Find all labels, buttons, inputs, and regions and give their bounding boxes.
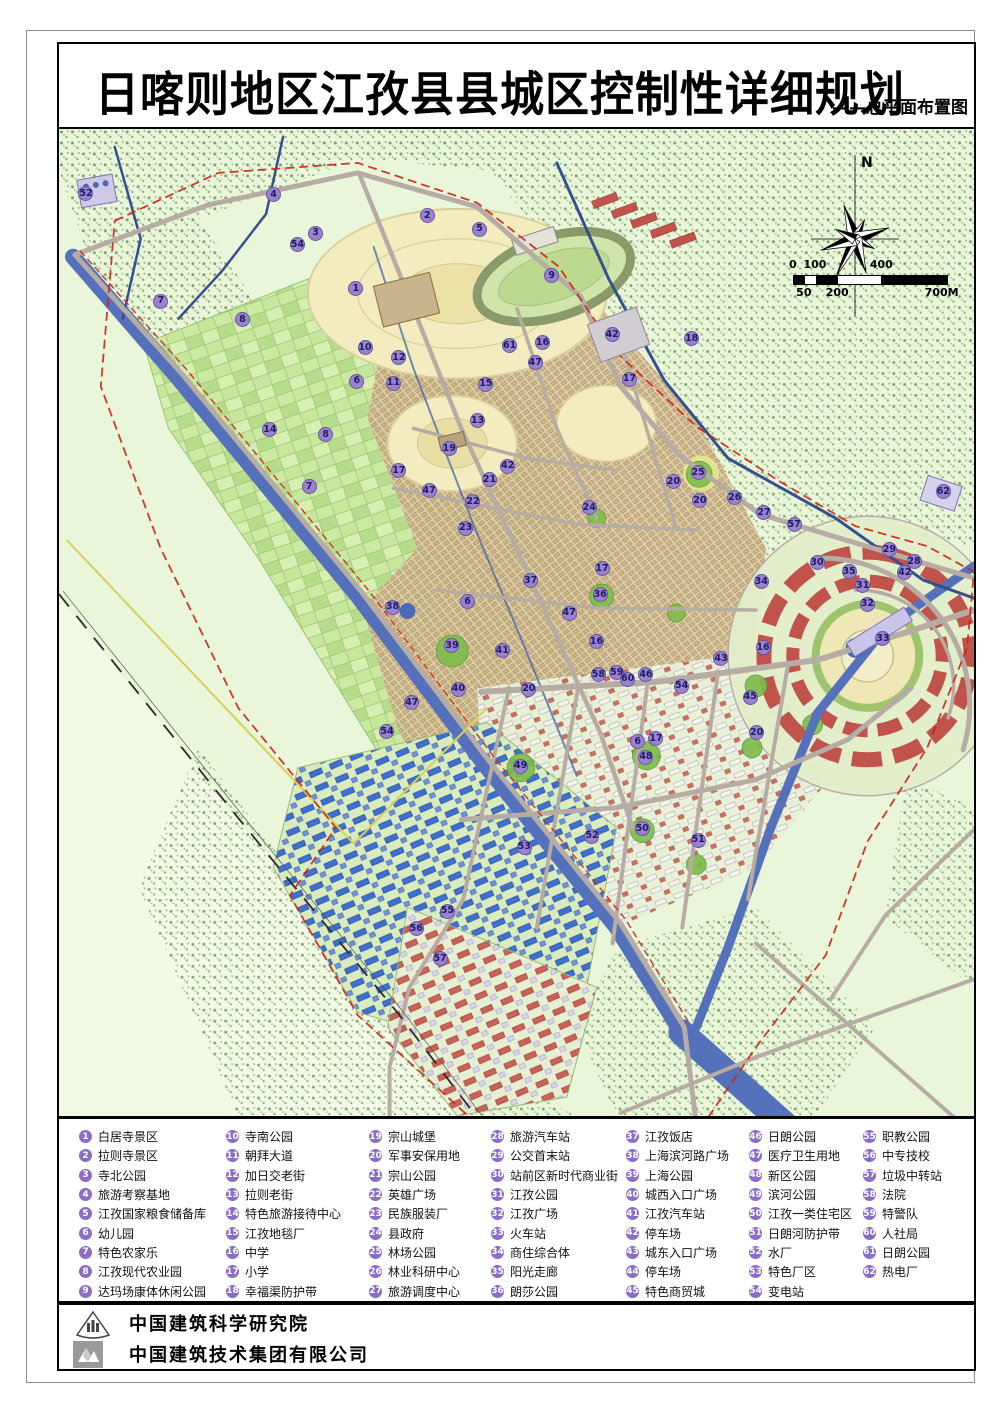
- legend-item-label: 朝拜大道: [245, 1147, 293, 1164]
- legend-item-number: 24: [369, 1227, 382, 1240]
- legend-item-23: 23民族服装厂: [369, 1204, 460, 1223]
- legend-item-label: 火车站: [510, 1225, 546, 1242]
- legend-item-number: 11: [226, 1149, 239, 1162]
- map-marker-8: 8: [318, 427, 333, 442]
- legend-item-label: 热电厂: [882, 1263, 918, 1280]
- legend-item-12: 12加日交老街: [226, 1166, 341, 1185]
- map-marker-17: 17: [622, 372, 637, 387]
- map-marker-43: 43: [713, 651, 728, 666]
- page-title: 日喀则地区江孜县县城区控制性详细规划: [95, 56, 905, 125]
- legend-item-label: 城西入口广场: [645, 1186, 717, 1203]
- legend-item-5: 5江孜国家粮食储备库: [79, 1204, 206, 1223]
- map-marker-40: 40: [451, 682, 466, 697]
- legend-item-number: 35: [491, 1265, 504, 1278]
- legend-item-10: 10寺南公园: [226, 1127, 341, 1146]
- legend-item-35: 35阳光走廊: [491, 1262, 618, 1281]
- map-marker-47: 47: [422, 483, 437, 498]
- map-marker-57: 57: [433, 951, 448, 966]
- map-marker-17: 17: [648, 731, 663, 746]
- map-marker-16: 16: [589, 634, 604, 649]
- plan-sheet-content: 日喀则地区江孜县县城区控制性详细规划 ——总平面布置图: [57, 42, 976, 1371]
- map-marker-34: 34: [754, 574, 769, 589]
- legend-item-label: 特警队: [882, 1205, 918, 1222]
- legend-item-label: 加日交老街: [245, 1167, 305, 1184]
- page-subtitle: ——总平面布置图: [832, 93, 968, 118]
- legend-column-4: 28旅游汽车站29公交首末站30站前区新时代商业街31江孜公园32江孜广场33火…: [491, 1127, 618, 1301]
- legend-item-number: 33: [491, 1227, 504, 1240]
- map-marker-17: 17: [391, 463, 406, 478]
- legend-item-label: 职教公园: [882, 1128, 930, 1145]
- map-marker-23: 23: [458, 521, 473, 536]
- map-marker-54: 54: [674, 679, 689, 694]
- legend-item-number: 1: [79, 1130, 92, 1143]
- legend-item-number: 57: [863, 1169, 876, 1182]
- map-marker-8: 8: [235, 312, 250, 327]
- legend-column-2: 10寺南公园11朝拜大道12加日交老街13拉则老街14特色旅游接待中心15江孜地…: [226, 1127, 341, 1301]
- legend-item-label: 江孜广场: [510, 1205, 558, 1222]
- footer: 中国建筑科学研究院 中国建筑技术集团有限公司: [59, 1301, 974, 1369]
- map-marker-19: 19: [442, 441, 457, 456]
- map-marker-31: 31: [855, 578, 870, 593]
- legend-item-label: 宗山公园: [388, 1167, 436, 1184]
- map-marker-42: 42: [897, 565, 912, 580]
- legend-item-number: 39: [626, 1169, 639, 1182]
- map-marker-12: 12: [391, 350, 406, 365]
- legend-item-number: 32: [491, 1207, 504, 1220]
- map-marker-53: 53: [517, 840, 532, 855]
- map-marker-21: 21: [482, 472, 497, 487]
- legend-item-number: 62: [863, 1265, 876, 1278]
- map-marker-42: 42: [605, 327, 620, 342]
- scale-bar-label: 0: [789, 258, 797, 271]
- legend-item-32: 32江孜广场: [491, 1204, 618, 1223]
- map-marker-41: 41: [495, 643, 510, 658]
- legend-item-label: 旅游考察基地: [98, 1186, 170, 1203]
- map-marker-54: 54: [290, 237, 305, 252]
- legend-item-label: 医疗卫生用地: [768, 1147, 840, 1164]
- map-marker-56: 56: [409, 921, 424, 936]
- legend-item-label: 林业科研中心: [388, 1263, 460, 1280]
- legend-item-label: 旅游汽车站: [510, 1128, 570, 1145]
- legend-item-label: 特色旅游接待中心: [245, 1205, 341, 1222]
- legend-item-number: 60: [863, 1227, 876, 1240]
- legend-item-number: 6: [79, 1227, 92, 1240]
- legend-item-number: 19: [369, 1130, 382, 1143]
- legend-item-61: 61日朗公园: [863, 1243, 942, 1262]
- legend-item-number: 10: [226, 1130, 239, 1143]
- map-marker-27: 27: [756, 505, 771, 520]
- scale-bar-label: 50: [796, 286, 811, 299]
- legend-item-number: 23: [369, 1207, 382, 1220]
- legend-item-number: 8: [79, 1265, 92, 1278]
- legend-item-52: 52水厂: [749, 1243, 852, 1262]
- legend-item-number: 18: [226, 1285, 239, 1298]
- org-name-1: 中国建筑科学研究院: [129, 1310, 309, 1336]
- map-marker-30: 30: [810, 555, 825, 570]
- legend-item-number: 21: [369, 1169, 382, 1182]
- legend-item-number: 46: [749, 1130, 762, 1143]
- legend-item-label: 滨河公园: [768, 1186, 816, 1203]
- map-marker-20: 20: [521, 682, 536, 697]
- legend-item-label: 变电站: [768, 1283, 804, 1300]
- legend-item-49: 49滨河公园: [749, 1185, 852, 1204]
- map-marker-17: 17: [595, 561, 610, 576]
- legend-item-number: 56: [863, 1149, 876, 1162]
- legend-item-24: 24县政府: [369, 1223, 460, 1242]
- scale-bar-segment: [816, 276, 838, 284]
- legend-item-number: 7: [79, 1246, 92, 1259]
- scale-bar-label: 200: [826, 286, 849, 299]
- scale-bar-segment: [794, 276, 805, 284]
- scale-bar-label: 700M: [925, 286, 959, 299]
- legend-item-3: 3寺北公园: [79, 1166, 206, 1185]
- legend-item-number: 41: [626, 1207, 639, 1220]
- legend-item-27: 27旅游调度中心: [369, 1281, 460, 1300]
- legend-item-7: 7特色农家乐: [79, 1243, 206, 1262]
- legend-item-label: 停车场: [645, 1263, 681, 1280]
- map-marker-25: 25: [691, 465, 706, 480]
- scale-bar-segments: [793, 275, 948, 285]
- legend-item-20: 20军事安保用地: [369, 1146, 460, 1165]
- legend-item-55: 55职教公园: [863, 1127, 942, 1146]
- map-marker-16: 16: [535, 335, 550, 350]
- map-marker-35: 35: [842, 564, 857, 579]
- legend-column-6: 46日朗公园47医疗卫生用地48新区公园49滨河公园50江孜一类住宅区51日朗河…: [749, 1127, 852, 1301]
- legend-item-number: 17: [226, 1265, 239, 1278]
- legend-item-number: 59: [863, 1207, 876, 1220]
- legend-item-number: 40: [626, 1188, 639, 1201]
- legend-item-8: 8江孜现代农业园: [79, 1262, 206, 1281]
- legend-item-label: 拉则寺景区: [98, 1147, 158, 1164]
- map-marker-5: 5: [472, 222, 487, 237]
- legend-item-label: 县政府: [388, 1225, 424, 1242]
- legend-item-45: 45特色商贸城: [626, 1281, 729, 1300]
- legend-item-16: 16中学: [226, 1243, 341, 1262]
- legend-item-13: 13拉则老街: [226, 1185, 341, 1204]
- legend-column-5: 37江孜饭店38上海滨河路广场39上海公园40城西入口广场41江孜汽车站42停车…: [626, 1127, 729, 1301]
- legend-item-19: 19宗山城堡: [369, 1127, 460, 1146]
- legend-item-label: 日朗公园: [882, 1244, 930, 1261]
- legend-item-label: 新区公园: [768, 1167, 816, 1184]
- legend-item-34: 34商住综合体: [491, 1243, 618, 1262]
- legend-item-label: 垃圾中转站: [882, 1167, 942, 1184]
- map-marker-32: 32: [860, 597, 875, 612]
- map-marker-6: 6: [349, 374, 364, 389]
- legend-item-number: 42: [626, 1227, 639, 1240]
- legend-item-number: 29: [491, 1149, 504, 1162]
- legend-item-57: 57垃圾中转站: [863, 1166, 942, 1185]
- map-marker-42: 42: [500, 459, 515, 474]
- legend-item-label: 江孜公园: [510, 1186, 558, 1203]
- legend-item-label: 旅游调度中心: [388, 1283, 460, 1300]
- legend-item-label: 公交首末站: [510, 1147, 570, 1164]
- legend-item-label: 江孜饭店: [645, 1128, 693, 1145]
- legend-item-58: 58法院: [863, 1185, 942, 1204]
- legend-item-50: 50江孜一类住宅区: [749, 1204, 852, 1223]
- legend-item-label: 特色农家乐: [98, 1244, 158, 1261]
- map-marker-58: 58: [591, 667, 606, 682]
- legend-item-number: 49: [749, 1188, 762, 1201]
- map-marker-57: 57: [787, 517, 802, 532]
- legend-item-label: 上海公园: [645, 1167, 693, 1184]
- map-marker-52: 52: [584, 829, 599, 844]
- legend-item-label: 日朗河防护带: [768, 1225, 840, 1242]
- legend-item-29: 29公交首末站: [491, 1146, 618, 1165]
- legend-item-label: 江孜汽车站: [645, 1205, 705, 1222]
- legend-item-label: 英雄广场: [388, 1186, 436, 1203]
- legend-item-51: 51日朗河防护带: [749, 1223, 852, 1242]
- cabr-logo-icon: [73, 1310, 113, 1340]
- legend-item-36: 36朗莎公园: [491, 1281, 618, 1300]
- legend-column-1: 1白居寺景区2拉则寺景区3寺北公园4旅游考察基地5江孜国家粮食储备库6幼儿园7特…: [79, 1127, 206, 1301]
- map-marker-16: 16: [756, 640, 771, 655]
- cctc-logo-icon: [73, 1341, 103, 1368]
- legend-item-number: 2: [79, 1149, 92, 1162]
- legend-item-number: 13: [226, 1188, 239, 1201]
- legend-item-label: 特色商贸城: [645, 1283, 705, 1300]
- legend-item-label: 民族服装厂: [388, 1205, 448, 1222]
- legend-item-number: 47: [749, 1149, 762, 1162]
- legend-item-number: 55: [863, 1130, 876, 1143]
- legend-item-number: 43: [626, 1246, 639, 1259]
- legend: 1白居寺景区2拉则寺景区3寺北公园4旅游考察基地5江孜国家粮食储备库6幼儿园7特…: [59, 1119, 974, 1301]
- map-marker-39: 39: [444, 638, 459, 653]
- legend-item-number: 34: [491, 1246, 504, 1259]
- legend-item-label: 寺北公园: [98, 1167, 146, 1184]
- legend-item-label: 城东入口广场: [645, 1244, 717, 1261]
- legend-item-label: 寺南公园: [245, 1128, 293, 1145]
- legend-item-number: 50: [749, 1207, 762, 1220]
- map-marker-6: 6: [460, 594, 475, 609]
- legend-item-number: 36: [491, 1285, 504, 1298]
- map-marker-47: 47: [562, 606, 577, 621]
- legend-item-number: 28: [491, 1130, 504, 1143]
- map-marker-22: 22: [465, 494, 480, 509]
- legend-item-41: 41江孜汽车站: [626, 1204, 729, 1223]
- legend-item-47: 47医疗卫生用地: [749, 1146, 852, 1165]
- map-marker-7: 7: [153, 294, 168, 309]
- map-marker-11: 11: [386, 376, 401, 391]
- legend-item-53: 53特色厂区: [749, 1262, 852, 1281]
- legend-item-62: 62热电厂: [863, 1262, 942, 1281]
- legend-item-18: 18幸福渠防护带: [226, 1281, 341, 1300]
- scale-bar-label: 400: [870, 258, 893, 271]
- legend-item-30: 30站前区新时代商业街: [491, 1166, 618, 1185]
- legend-item-number: 4: [79, 1188, 92, 1201]
- legend-item-56: 56中专技校: [863, 1146, 942, 1165]
- legend-item-22: 22英雄广场: [369, 1185, 460, 1204]
- legend-item-label: 法院: [882, 1186, 906, 1203]
- legend-item-number: 45: [626, 1285, 639, 1298]
- legend-item-26: 26林业科研中心: [369, 1262, 460, 1281]
- map-marker-37: 37: [523, 573, 538, 588]
- map-marker-13: 13: [470, 413, 485, 428]
- legend-item-54: 54变电站: [749, 1281, 852, 1300]
- legend-item-label: 小学: [245, 1263, 269, 1280]
- legend-item-number: 9: [79, 1285, 92, 1298]
- map-marker-54: 54: [379, 724, 394, 739]
- map-marker-10: 10: [358, 340, 373, 355]
- legend-item-number: 61: [863, 1246, 876, 1259]
- legend-item-31: 31江孜公园: [491, 1185, 618, 1204]
- legend-item-label: 江孜国家粮食储备库: [98, 1205, 206, 1222]
- map-marker-60: 60: [620, 672, 635, 687]
- legend-item-number: 16: [226, 1246, 239, 1259]
- legend-item-label: 特色厂区: [768, 1263, 816, 1280]
- map-marker-62: 62: [936, 484, 951, 499]
- legend-item-number: 44: [626, 1265, 639, 1278]
- legend-item-label: 日朗公园: [768, 1128, 816, 1145]
- legend-item-label: 幼儿园: [98, 1225, 134, 1242]
- legend-item-25: 25林场公园: [369, 1243, 460, 1262]
- legend-item-33: 33火车站: [491, 1223, 618, 1242]
- map-marker-55: 55: [440, 904, 455, 919]
- legend-item-1: 1白居寺景区: [79, 1127, 206, 1146]
- legend-item-number: 15: [226, 1227, 239, 1240]
- legend-item-label: 达玛场康体休闲公园: [98, 1283, 206, 1300]
- map-marker-26: 26: [727, 490, 742, 505]
- legend-item-label: 水厂: [768, 1244, 792, 1261]
- scale-bar: 0100400 50200700M: [793, 260, 948, 304]
- legend-item-number: 37: [626, 1130, 639, 1143]
- legend-item-label: 拉则老街: [245, 1186, 293, 1203]
- legend-item-15: 15江孜地毯厂: [226, 1223, 341, 1242]
- legend-item-number: 27: [369, 1285, 382, 1298]
- map-marker-20: 20: [749, 725, 764, 740]
- legend-item-number: 52: [749, 1246, 762, 1259]
- map-marker-18: 18: [684, 331, 699, 346]
- map-marker-52: 52: [78, 186, 93, 201]
- legend-item-label: 中专技校: [882, 1147, 930, 1164]
- legend-item-label: 人社局: [882, 1225, 918, 1242]
- scale-bar-segment: [838, 276, 882, 284]
- legend-item-48: 48新区公园: [749, 1166, 852, 1185]
- map-marker-14: 14: [262, 422, 277, 437]
- map-marker-47: 47: [528, 355, 543, 370]
- legend-item-label: 江孜现代农业园: [98, 1263, 182, 1280]
- legend-item-label: 上海滨河路广场: [645, 1147, 729, 1164]
- map-marker-45: 45: [743, 690, 758, 705]
- map-marker-20: 20: [666, 474, 681, 489]
- map-marker-33: 33: [875, 631, 890, 646]
- map-marker-9: 9: [544, 268, 559, 283]
- legend-item-43: 43城东入口广场: [626, 1243, 729, 1262]
- legend-item-number: 30: [491, 1169, 504, 1182]
- legend-item-label: 白居寺景区: [98, 1128, 158, 1145]
- legend-item-label: 朗莎公园: [510, 1283, 558, 1300]
- map-marker-15: 15: [478, 377, 493, 392]
- map-marker-50: 50: [635, 821, 650, 836]
- legend-item-42: 42停车场: [626, 1223, 729, 1242]
- map-marker-46: 46: [638, 667, 653, 682]
- legend-item-label: 商住综合体: [510, 1244, 570, 1261]
- legend-item-17: 17小学: [226, 1262, 341, 1281]
- scale-bar-segment: [881, 276, 947, 284]
- compass-north-label: N: [861, 155, 873, 171]
- legend-item-label: 宗山城堡: [388, 1128, 436, 1145]
- map-marker-4: 4: [266, 187, 281, 202]
- map-marker-1: 1: [348, 281, 363, 296]
- legend-item-number: 22: [369, 1188, 382, 1201]
- legend-item-11: 11朝拜大道: [226, 1146, 341, 1165]
- map-marker-2: 2: [420, 208, 435, 223]
- legend-item-44: 44停车场: [626, 1262, 729, 1281]
- legend-item-21: 21宗山公园: [369, 1166, 460, 1185]
- legend-item-number: 54: [749, 1285, 762, 1298]
- scale-bar-segment: [805, 276, 816, 284]
- map-marker-24: 24: [582, 500, 597, 515]
- legend-item-number: 38: [626, 1149, 639, 1162]
- map-marker-36: 36: [593, 587, 608, 602]
- legend-item-46: 46日朗公园: [749, 1127, 852, 1146]
- legend-item-4: 4旅游考察基地: [79, 1185, 206, 1204]
- legend-item-number: 48: [749, 1169, 762, 1182]
- map-marker-6: 6: [630, 734, 645, 749]
- map-marker-7: 7: [302, 479, 317, 494]
- legend-item-label: 江孜地毯厂: [245, 1225, 305, 1242]
- map-marker-61: 61: [502, 338, 517, 353]
- legend-item-39: 39上海公园: [626, 1166, 729, 1185]
- legend-item-number: 3: [79, 1169, 92, 1182]
- title-band: 日喀则地区江孜县县城区控制性详细规划 ——总平面布置图: [59, 44, 974, 129]
- map-marker-29: 29: [882, 542, 897, 557]
- legend-item-number: 53: [749, 1265, 762, 1278]
- legend-item-label: 阳光走廊: [510, 1263, 558, 1280]
- legend-item-14: 14特色旅游接待中心: [226, 1204, 341, 1223]
- legend-item-60: 60人社局: [863, 1223, 942, 1242]
- map-marker-3: 3: [308, 226, 323, 241]
- sheet: { "title": { "main": "日喀则地区江孜县县城区控制性详细规划…: [0, 0, 1000, 1414]
- legend-item-38: 38上海滨河路广场: [626, 1146, 729, 1165]
- legend-item-number: 12: [226, 1169, 239, 1182]
- legend-column-7: 55职教公园56中专技校57垃圾中转站58法院59特警队60人社局61日朗公园6…: [863, 1127, 942, 1281]
- map-marker-48: 48: [638, 750, 653, 765]
- legend-item-label: 江孜一类住宅区: [768, 1205, 852, 1222]
- legend-item-28: 28旅游汽车站: [491, 1127, 618, 1146]
- legend-item-number: 14: [226, 1207, 239, 1220]
- legend-item-label: 幸福渠防护带: [245, 1283, 317, 1300]
- legend-item-2: 2拉则寺景区: [79, 1146, 206, 1165]
- legend-item-number: 20: [369, 1149, 382, 1162]
- legend-column-3: 19宗山城堡20军事安保用地21宗山公园22英雄广场23民族服装厂24县政府25…: [369, 1127, 460, 1301]
- org-name-2: 中国建筑技术集团有限公司: [129, 1341, 369, 1367]
- legend-item-label: 停车场: [645, 1225, 681, 1242]
- legend-item-label: 中学: [245, 1244, 269, 1261]
- legend-item-number: 58: [863, 1188, 876, 1201]
- legend-item-9: 9达玛场康体休闲公园: [79, 1281, 206, 1300]
- legend-item-number: 26: [369, 1265, 382, 1278]
- map-marker-47: 47: [404, 695, 419, 710]
- legend-item-59: 59特警队: [863, 1204, 942, 1223]
- legend-item-number: 51: [749, 1227, 762, 1240]
- legend-item-6: 6幼儿园: [79, 1223, 206, 1242]
- legend-item-number: 25: [369, 1246, 382, 1259]
- legend-item-number: 31: [491, 1188, 504, 1201]
- legend-item-label: 站前区新时代商业街: [510, 1167, 618, 1184]
- legend-item-40: 40城西入口广场: [626, 1185, 729, 1204]
- map-marker-49: 49: [513, 759, 528, 774]
- legend-item-number: 5: [79, 1207, 92, 1220]
- map-marker-20: 20: [692, 493, 707, 508]
- map-band: 5242535491784218166110124717611151314819…: [59, 129, 974, 1119]
- map-marker-51: 51: [691, 833, 706, 848]
- legend-item-label: 林场公园: [388, 1244, 436, 1261]
- scale-bar-label: 100: [804, 258, 827, 271]
- legend-item-label: 军事安保用地: [388, 1147, 460, 1164]
- legend-item-37: 37江孜饭店: [626, 1127, 729, 1146]
- map-marker-38: 38: [385, 600, 400, 615]
